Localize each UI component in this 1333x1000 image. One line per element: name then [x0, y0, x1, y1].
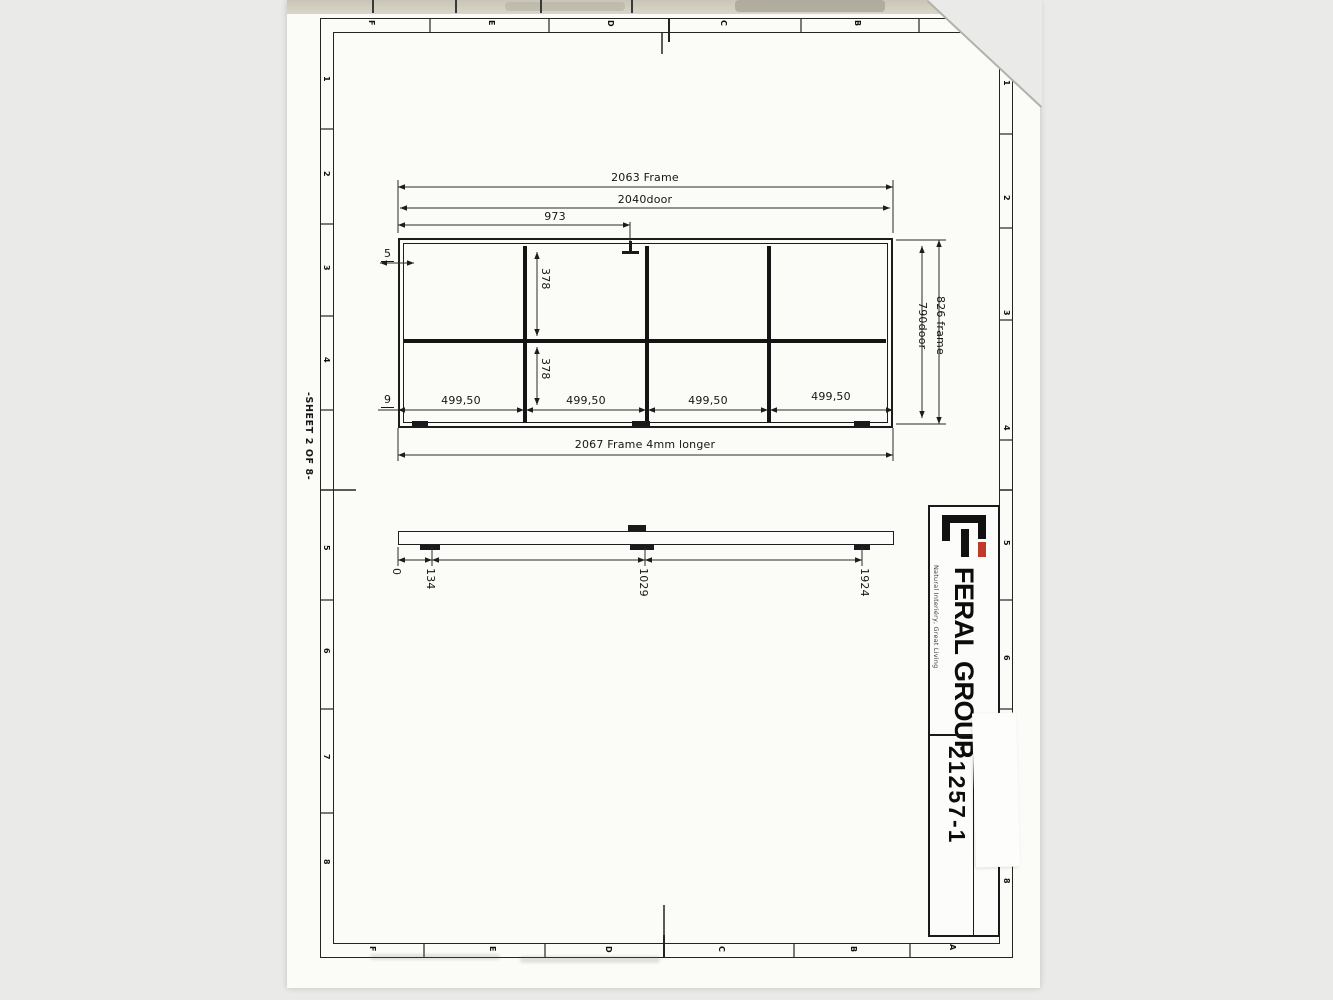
- dim-row-height-top: 378: [539, 268, 552, 290]
- title-block-logo-cell: FERAL GROUP Natural Interiéry, Great Liv…: [930, 507, 998, 734]
- dim-offset-top: 5: [381, 247, 394, 260]
- cut-tick: [631, 0, 633, 13]
- cut-tick: [540, 0, 542, 13]
- dim-panel-width-2: 499,50: [546, 394, 626, 407]
- dim-frame-width: 2063 Frame: [560, 171, 730, 184]
- dim-panel-width-1: 499,50: [421, 394, 501, 407]
- dim-position-1924: 1924: [858, 568, 871, 597]
- dim-door-height: 790door: [916, 302, 929, 349]
- dwg-number-value: 21257-1: [943, 736, 973, 935]
- dim-offset-top-value: 5: [381, 247, 394, 262]
- dim-position-134: 134: [424, 568, 437, 590]
- dim-bottom-frame: 2067 Frame 4mm longer: [540, 438, 750, 451]
- dim-position-1029: 1029: [637, 568, 650, 597]
- dim-position-0: 0: [390, 568, 403, 575]
- dim-offset-bottom: 9: [381, 393, 394, 406]
- cut-tick: [455, 0, 457, 13]
- dim-hanger-position: 973: [520, 210, 590, 223]
- company-tagline: Natural Interiéry, Great Living: [932, 565, 940, 730]
- paper-sticker: [972, 712, 1020, 867]
- feral-group-logo-icon: [942, 515, 986, 559]
- dimension-linework: [0, 0, 1333, 1000]
- dim-frame-height: 826 frame: [934, 296, 947, 355]
- scanned-technical-drawing: { "colors": { "background": "#eaeae8", "…: [0, 0, 1333, 1000]
- dim-offset-bottom-value: 9: [381, 393, 394, 408]
- cut-tick: [372, 0, 374, 13]
- dim-door-width: 2040door: [560, 193, 730, 206]
- dim-panel-width-4: 499,50: [791, 390, 871, 403]
- bleed-through-smudge: [370, 954, 500, 960]
- bleed-through-smudge: [520, 956, 660, 963]
- dim-row-height-bottom: 378: [539, 358, 552, 380]
- dim-panel-width-3: 499,50: [668, 394, 748, 407]
